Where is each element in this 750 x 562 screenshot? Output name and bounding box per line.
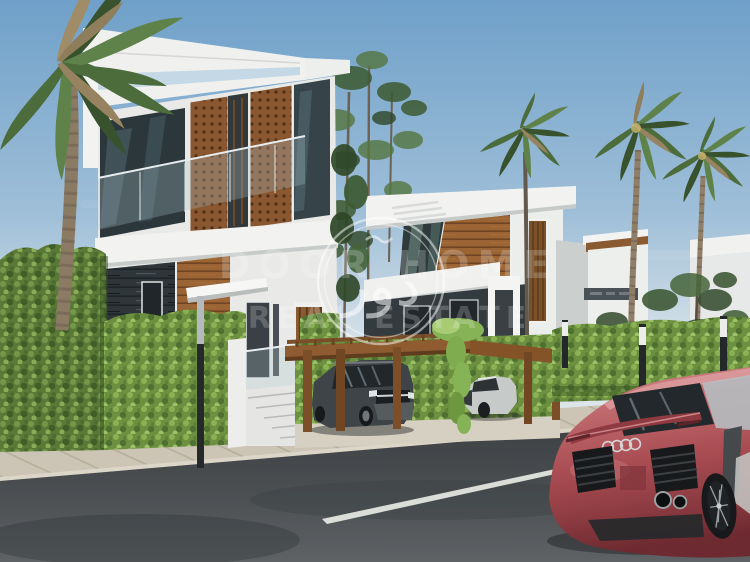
bollard-light: [720, 319, 727, 337]
car-exhaust: [674, 496, 687, 509]
car-right-vent: [650, 444, 698, 493]
pergola-post: [524, 352, 532, 424]
dark-suv-wheel: [315, 406, 325, 422]
palm-fruit: [698, 152, 706, 160]
pergola-post: [303, 350, 312, 432]
bollard-light: [639, 327, 646, 345]
stair-stringer-wall: [228, 338, 246, 448]
dark-suv-headlight: [369, 390, 377, 397]
architectural-rendering-canvas: DOOR HOME REAL ESTATE دور: [0, 0, 750, 562]
street-lamp-post: [197, 296, 204, 468]
watermark-arabic-logo: دور: [338, 254, 420, 319]
pergola-post: [393, 347, 401, 429]
dark-suv-headlight: [408, 392, 414, 399]
car-exhaust: [655, 492, 671, 508]
car-license-recess: [620, 466, 646, 490]
scene-svg: DOOR HOME REAL ESTATE دور: [0, 0, 750, 562]
bollard-light: [562, 322, 568, 336]
ivy-wall: [0, 244, 108, 452]
palm-fruit: [631, 123, 641, 133]
pergola-post: [336, 349, 345, 431]
silver-suv-wheel: [478, 402, 490, 418]
